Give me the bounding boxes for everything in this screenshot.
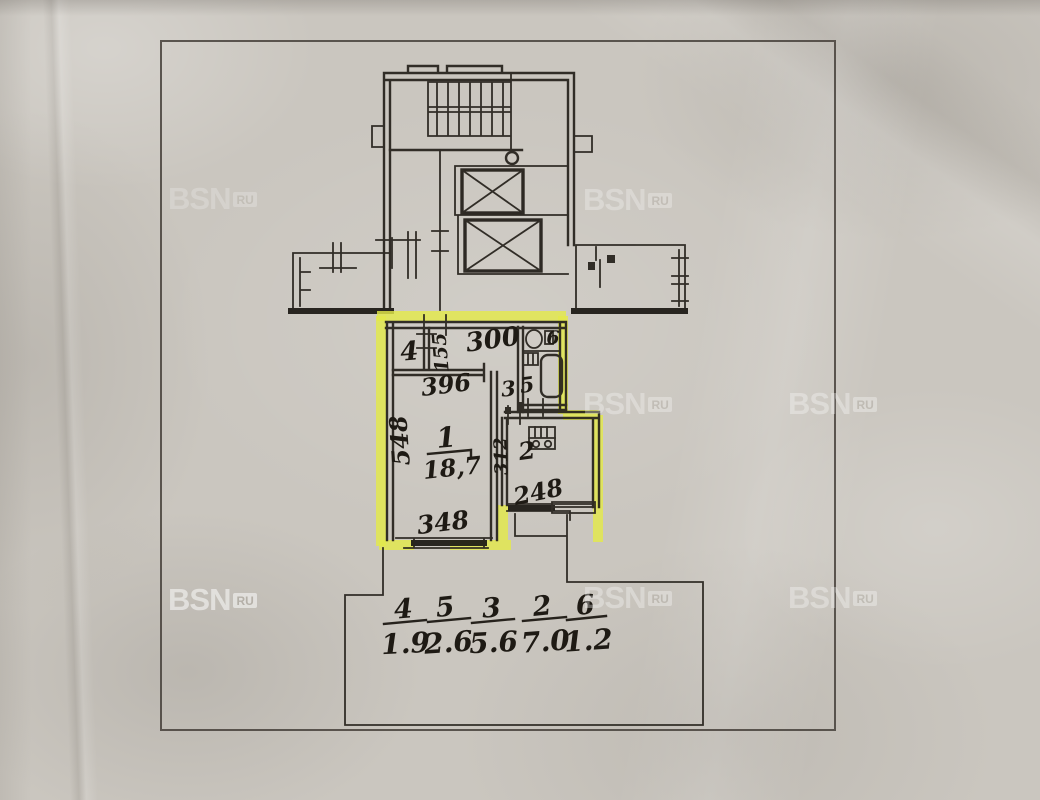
- legend-room-area: 2.6: [422, 624, 474, 660]
- legend-item: 5 2.6: [422, 591, 474, 661]
- toilet-icon: [526, 330, 542, 348]
- stairwell-right-tab: [574, 136, 592, 152]
- dim-closet: 155: [428, 332, 453, 373]
- dim-kitchen-width: 248: [510, 472, 566, 511]
- door-leaf-mark: [588, 262, 595, 270]
- stove-burner-icon: [545, 441, 551, 447]
- room-label-hall: 3: [500, 375, 517, 401]
- area-legend: 4 1.9 5 2.6 3 5.6 2 7.0 6 1.2: [380, 589, 613, 661]
- dim-hall-width: 300: [464, 321, 522, 358]
- shaft1-walls: [455, 166, 568, 215]
- dim-kitchen-depth: 312: [490, 437, 512, 475]
- door-leaf-mark: [517, 402, 523, 409]
- dim-room-top: 396: [419, 367, 473, 402]
- dim-room-depth: 548: [383, 414, 415, 466]
- left-corridor-door-ticks: [320, 232, 420, 278]
- elevator1-x-icon: [462, 170, 523, 213]
- legend-room-area: 1.2: [563, 622, 614, 658]
- room1-area: 18,7: [422, 450, 483, 485]
- room-label-bath: 5: [518, 371, 536, 398]
- sink-icon: [523, 353, 538, 365]
- right-corridor: [574, 245, 688, 311]
- room-label-1: 1: [435, 420, 457, 455]
- dim-room-width: 348: [415, 505, 470, 540]
- elevator-shaft-2: [458, 216, 568, 274]
- building-common-areas: [291, 66, 688, 311]
- elevator-shaft-1: [455, 166, 568, 215]
- elevator2-x-icon: [465, 220, 541, 271]
- stairwell-left-tab: [372, 126, 384, 147]
- room-label-wc: 6: [546, 327, 559, 349]
- door-leaf-mark: [607, 255, 615, 263]
- legend-item: 3 5.6: [468, 592, 518, 660]
- garbage-chute-icon: [506, 152, 518, 164]
- landing-divider-wall: [432, 150, 448, 310]
- door-leaf-mark: [505, 407, 511, 414]
- floor-plan-drawing: 300 4 155 6 396 3 5 548 1 18,7 348 312 2…: [0, 0, 1040, 800]
- legend-room-area: 5.6: [468, 625, 518, 661]
- right-corridor-walls: [576, 245, 688, 310]
- legend-item: 6 1.2: [563, 589, 614, 658]
- left-corridor: [291, 232, 420, 311]
- right-corridor-door-marks: [596, 247, 600, 287]
- room-label-kitchen: 2: [516, 435, 538, 466]
- stairs: [428, 74, 511, 150]
- room-label-closet: 4: [399, 336, 420, 367]
